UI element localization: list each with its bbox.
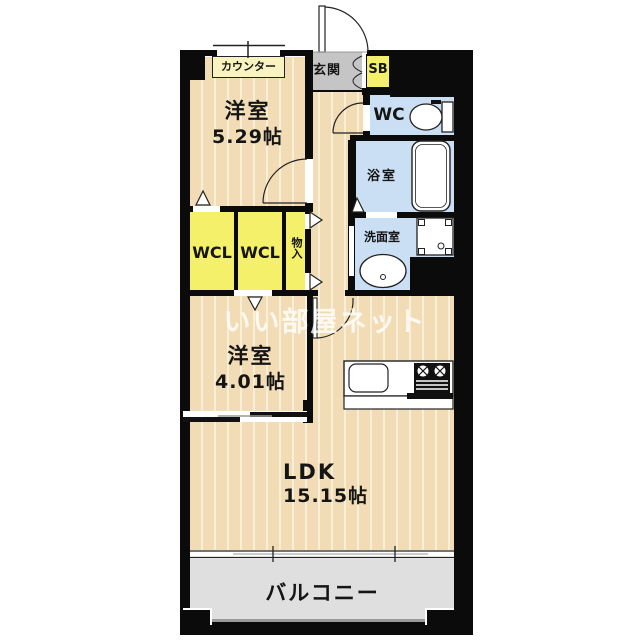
storage-label: 物入: [288, 222, 304, 274]
wall-hall-ldk-left: [305, 290, 318, 296]
door-slide-washroom: [349, 226, 354, 276]
block-balcony-right: [425, 608, 454, 625]
room1-size: 5.29帖: [195, 128, 300, 148]
wall-wc-left-upper: [363, 93, 370, 105]
bath-label: 浴室: [360, 170, 404, 184]
wall-wc-bottom: [350, 135, 454, 141]
door-gap-storage-bottom: [305, 273, 311, 290]
room1-name: 洋室: [195, 100, 300, 122]
wall-right: [454, 50, 473, 635]
balcony-label: バルコニー: [260, 582, 385, 604]
wall-room2-right-foot: [303, 400, 313, 423]
wall-bath-left: [348, 140, 356, 218]
block-balcony-left: [183, 608, 212, 625]
entry-door-arc: [325, 7, 368, 52]
wcl1-label: WCL: [190, 245, 234, 262]
entry-door-leaf: [319, 6, 325, 52]
block-washroom: [410, 257, 454, 296]
wall-top-right: [367, 50, 390, 56]
door-gap-wcl2: [234, 290, 272, 296]
door-gap-storage-top: [305, 214, 311, 229]
floor-plan: カウンター 玄関 SB WC 浴室 洗面室 WCL WCL 物入 洋室 5.29…: [0, 0, 640, 640]
wcl2-label: WCL: [238, 245, 282, 262]
door-gap-bath: [366, 212, 397, 218]
shoebox-label: SB: [366, 63, 390, 77]
entrance-label: 玄関: [308, 64, 346, 78]
door-gap-wcl1: [193, 206, 220, 212]
wall-left: [180, 50, 190, 635]
room2-size: 4.01帖: [198, 373, 303, 393]
watermark-text: いい部屋ネット: [200, 300, 450, 339]
room2-name: 洋室: [198, 345, 303, 367]
entrance-step-line: [308, 90, 365, 92]
balcony-window-band: [190, 550, 454, 559]
toilet-label: WC: [372, 107, 406, 125]
counter-label: カウンター: [213, 61, 284, 73]
ldk-name: LDK: [283, 461, 363, 483]
wall-sb-bottom: [362, 88, 454, 95]
door-gap-room1: [305, 159, 313, 203]
ldk-size: 15.15帖: [283, 487, 373, 507]
washroom-label: 洗面室: [357, 231, 407, 244]
wall-bath-bottom: [348, 212, 454, 218]
wall-wcl-bottom-left: [183, 290, 234, 296]
door-gap-wc: [363, 105, 370, 131]
wall-wcl-divider2: [282, 212, 286, 290]
